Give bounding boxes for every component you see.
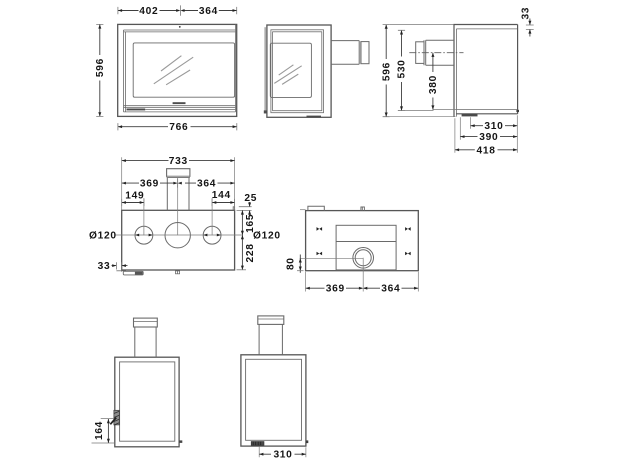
svg-text:364: 364 — [199, 6, 218, 17]
svg-text:33: 33 — [98, 261, 111, 272]
svg-text:364: 364 — [197, 179, 216, 190]
svg-text:369: 369 — [326, 284, 345, 295]
svg-text:164: 164 — [94, 421, 105, 440]
svg-text:144: 144 — [212, 190, 231, 201]
svg-text:149: 149 — [125, 190, 144, 201]
svg-text:33: 33 — [520, 7, 531, 20]
svg-text:418: 418 — [477, 145, 496, 156]
svg-text:390: 390 — [479, 132, 498, 143]
svg-text:733: 733 — [169, 156, 188, 167]
svg-text:Ø120: Ø120 — [89, 231, 117, 242]
svg-text:364: 364 — [381, 284, 400, 295]
svg-text:369: 369 — [140, 179, 159, 190]
svg-text:596: 596 — [381, 62, 392, 81]
svg-text:380: 380 — [428, 75, 439, 94]
svg-text:402: 402 — [139, 6, 158, 17]
svg-text:310: 310 — [273, 450, 292, 460]
svg-text:80: 80 — [286, 257, 297, 270]
svg-text:Ø120: Ø120 — [253, 231, 281, 242]
svg-text:596: 596 — [95, 58, 106, 77]
svg-text:530: 530 — [397, 59, 408, 78]
svg-text:766: 766 — [169, 122, 188, 133]
svg-text:228: 228 — [245, 243, 256, 262]
svg-text:310: 310 — [484, 121, 503, 132]
svg-text:25: 25 — [244, 193, 257, 204]
